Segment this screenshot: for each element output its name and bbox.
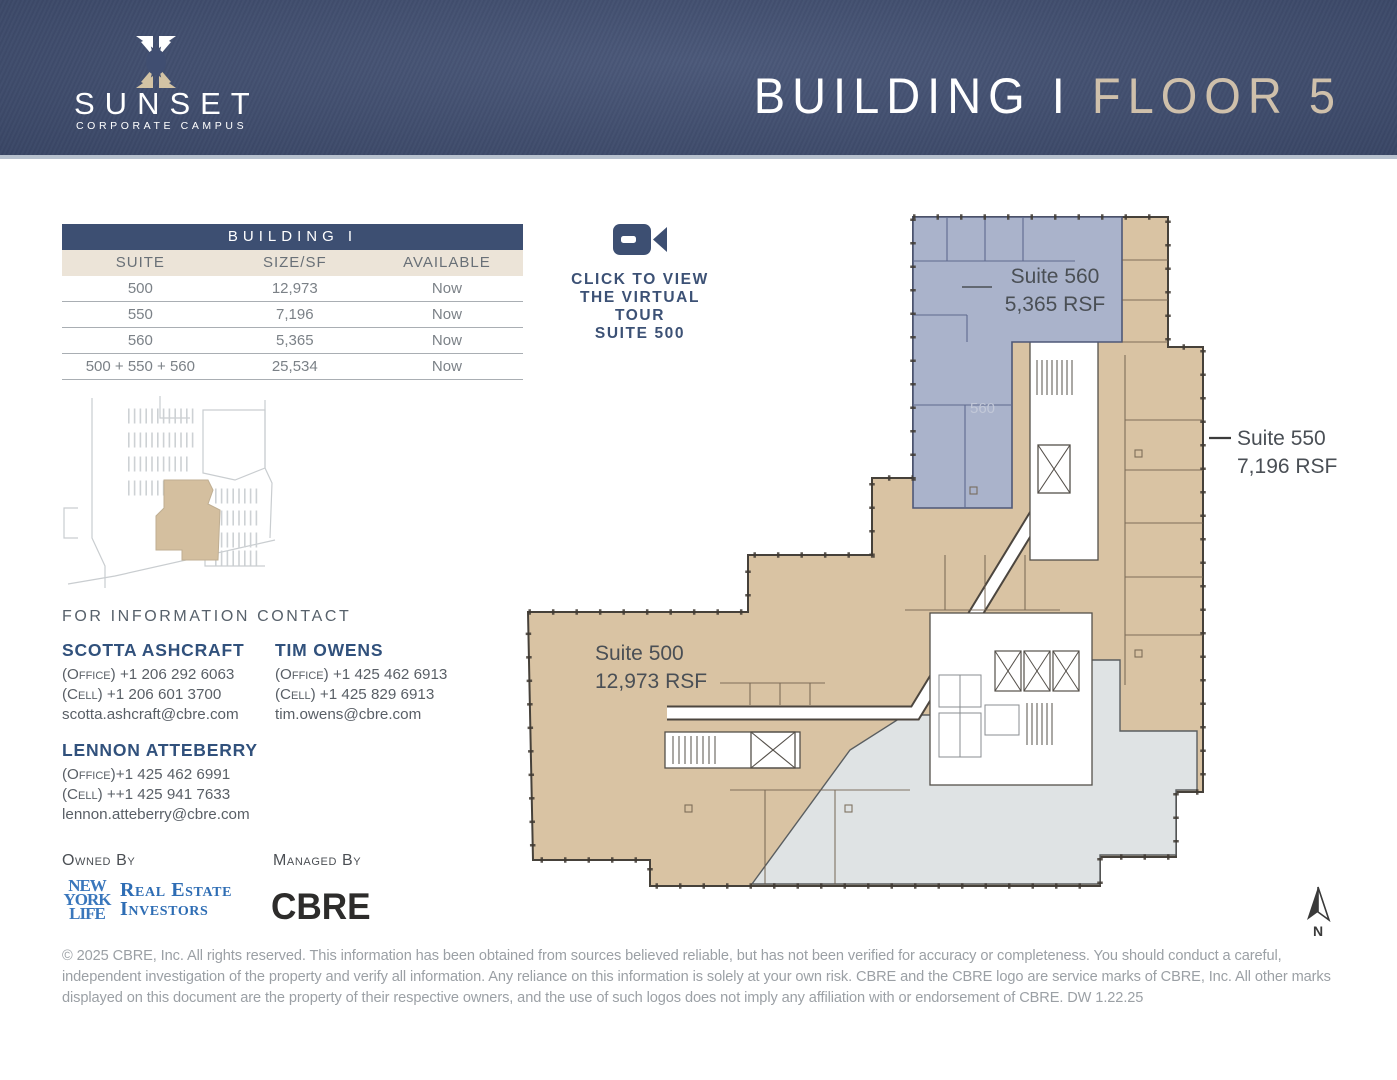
managed-by-label: Managed By xyxy=(273,852,361,870)
office-phone: +1 206 292 6063 xyxy=(116,666,235,683)
contact-name: TIM OWENS xyxy=(275,640,505,661)
table-header-row: SUITE SIZE/SF AVAILABLE xyxy=(62,250,523,276)
owned-by-label: Owned By xyxy=(62,852,135,870)
leftwing-core xyxy=(665,732,800,768)
office-phone: +1 425 462 6991 xyxy=(116,766,230,783)
contact-name: LENNON ATTEBERRY xyxy=(62,740,292,761)
header-band: SUNSET CORPORATE CAMPUS BUILDING I FLOOR… xyxy=(0,0,1397,159)
nyl-mark: NEW YORK LIFE xyxy=(62,879,112,921)
contact-heading: FOR INFORMATION CONTACT xyxy=(62,608,351,626)
cell-available: Now xyxy=(371,332,523,349)
cell-size: 5,365 xyxy=(219,332,371,349)
title-building: BUILDING I xyxy=(754,67,1092,123)
cell-suite: 560 xyxy=(62,332,219,349)
page-title: BUILDING I FLOOR 5 xyxy=(754,66,1342,124)
suite-500-label: Suite 500 xyxy=(595,642,684,665)
title-floor: FLOOR 5 xyxy=(1092,67,1342,123)
contact-card: SCOTTA ASHCRAFT (Office) +1 206 292 6063… xyxy=(62,640,292,725)
cell-label: (Cell) xyxy=(62,686,103,703)
office-label: (Office) xyxy=(62,766,116,783)
contact-email[interactable]: tim.owens@cbre.com xyxy=(275,705,505,725)
contact-card: LENNON ATTEBERRY (Office)+1 425 462 6991… xyxy=(62,740,292,825)
disclaimer-text: © 2025 CBRE, Inc. All rights reserved. T… xyxy=(62,946,1346,1009)
site-plan-building-highlight xyxy=(156,480,220,560)
cell-label: (Cell) xyxy=(62,786,103,803)
contact-email[interactable]: lennon.atteberry@cbre.com xyxy=(62,805,292,825)
cell-size: 7,196 xyxy=(219,306,371,323)
new-york-life-logo: NEW YORK LIFE Real Estate Investors xyxy=(62,879,232,921)
col-available: AVAILABLE xyxy=(371,254,523,271)
col-size: SIZE/SF xyxy=(219,254,371,271)
contact-email[interactable]: scotta.ashcraft@cbre.com xyxy=(62,705,292,725)
cell-suite: 550 xyxy=(62,306,219,323)
real-estate-investors-wordmark: Real Estate Investors xyxy=(120,881,232,919)
cell-suite: 500 + 550 + 560 xyxy=(62,358,219,375)
table-row: 550 7,196 Now xyxy=(62,302,523,328)
table-title: BUILDING I xyxy=(62,224,523,250)
floor-plan: 560 Suite 560 5,365 RSF Suite 550 7,196 … xyxy=(515,205,1397,960)
office-phone: +1 425 462 6913 xyxy=(329,666,448,683)
logo-wordmark: SUNSET xyxy=(74,86,260,122)
cell-phone: +1 206 601 3700 xyxy=(103,686,222,703)
table-row: 500 + 550 + 560 25,534 Now xyxy=(62,354,523,380)
availability-table: BUILDING I SUITE SIZE/SF AVAILABLE 500 1… xyxy=(62,224,523,380)
central-core xyxy=(930,613,1092,785)
cell-size: 12,973 xyxy=(219,280,371,297)
cell-suite: 500 xyxy=(62,280,219,297)
site-plan xyxy=(60,388,285,601)
table-row: 500 12,973 Now xyxy=(62,276,523,302)
office-label: (Office) xyxy=(62,666,116,683)
col-suite: SUITE xyxy=(62,254,219,271)
upper-core xyxy=(1030,315,1098,560)
cell-size: 25,534 xyxy=(219,358,371,375)
contact-card: TIM OWENS (Office) +1 425 462 6913 (Cell… xyxy=(275,640,505,725)
office-label: (Office) xyxy=(275,666,329,683)
logo-tagline: CORPORATE CAMPUS xyxy=(76,120,247,132)
cell-available: Now xyxy=(371,358,523,375)
cbre-logo: CBRE xyxy=(271,886,371,928)
table-row: 560 5,365 Now xyxy=(62,328,523,354)
flyer-page: SUNSET CORPORATE CAMPUS BUILDING I FLOOR… xyxy=(0,0,1397,1080)
suite-560-rsf: 5,365 RSF xyxy=(1005,293,1105,316)
cell-phone: +1 425 829 6913 xyxy=(316,686,435,703)
north-label: N xyxy=(1300,923,1336,939)
contact-name: SCOTTA ASHCRAFT xyxy=(62,640,292,661)
suite-560-label: Suite 560 xyxy=(1011,265,1100,288)
cell-available: Now xyxy=(371,306,523,323)
north-arrow: N xyxy=(1300,884,1336,939)
suite-550-rsf: 7,196 RSF xyxy=(1237,455,1337,478)
cell-label: (Cell) xyxy=(275,686,316,703)
cell-available: Now xyxy=(371,280,523,297)
cell-phone: ++1 425 941 7633 xyxy=(103,786,231,803)
suite-500-rsf: 12,973 RSF xyxy=(595,670,707,693)
suite-550-label: Suite 550 xyxy=(1237,427,1326,450)
suite-560-watermark: 560 xyxy=(970,400,995,417)
